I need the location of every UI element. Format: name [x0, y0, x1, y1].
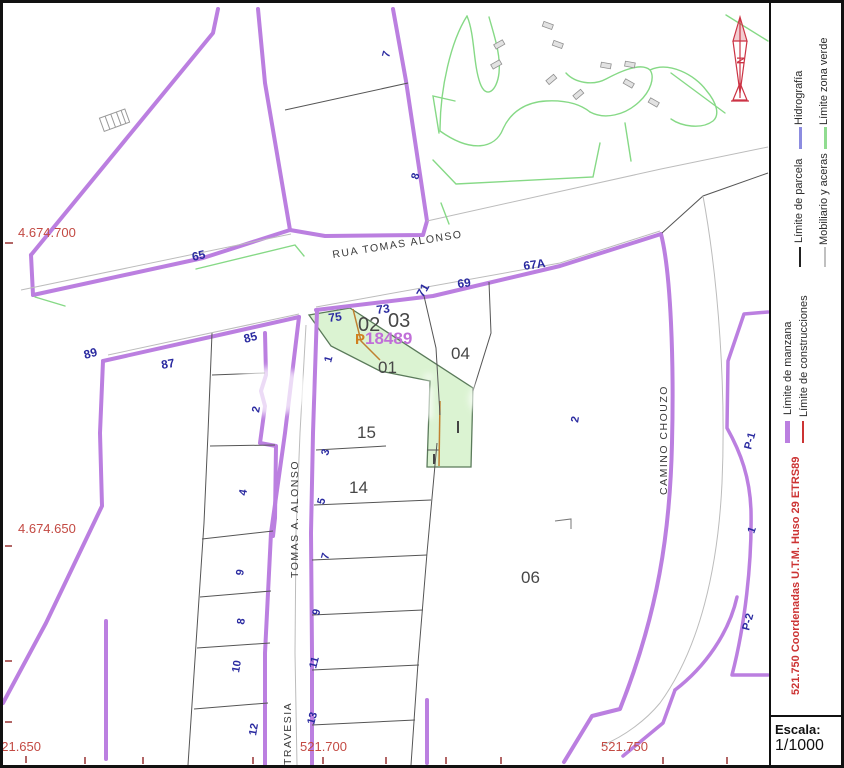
parcel-number: 11: [307, 655, 322, 669]
legend-label-construcciones: Límite de construcciones: [798, 295, 810, 417]
parcel-number: 2: [569, 415, 582, 423]
parcel-number: P-1: [742, 431, 758, 451]
parcel-number: 89: [82, 345, 99, 362]
legend-swatch-zona-verde: [824, 127, 827, 149]
block-number: 06: [521, 568, 540, 587]
parcel-number: 10: [230, 659, 244, 673]
parcel-number: 9: [234, 568, 247, 576]
block-number: 02: [358, 314, 380, 336]
block-number: 15: [357, 423, 376, 442]
scale-box: Escala: 1/1000: [771, 715, 844, 765]
coord-label: 521.700: [300, 739, 347, 754]
coord-label: 4.674.700: [18, 225, 76, 240]
parcel-number: 4: [237, 488, 250, 497]
legend-label-mobiliario: Mobiliario y aceras: [818, 153, 830, 245]
coord-label: 521.750: [601, 739, 648, 754]
street-label-tomas-a-alonso: TOMAS A. ALONSO: [289, 460, 301, 578]
street-label-camino-chouzo: CAMINO CHOUZO: [658, 385, 670, 495]
legend-swatch-construcciones: [802, 421, 804, 443]
block-number: 01: [378, 358, 397, 377]
coord-label: 4.674.650: [18, 521, 76, 536]
block-number: 14: [349, 478, 368, 497]
legend-swatch-mobiliario: [824, 247, 826, 267]
parcel-number: 85: [242, 329, 259, 346]
parcel-number: 8: [235, 617, 248, 625]
block-number: 03: [388, 310, 410, 332]
scale-title: Escala:: [775, 722, 840, 737]
scale-value: 1/1000: [775, 737, 840, 755]
north-arrow: N: [731, 17, 749, 101]
parcel-number: 7: [380, 50, 393, 59]
legend-label-parcela: Límite de parcela: [793, 159, 805, 243]
coord-label: 521.650: [3, 739, 41, 754]
structure-hatch: [99, 109, 129, 131]
legend-swatch-manzana: [785, 421, 790, 443]
legend-label-zona-verde: Límite zona verde: [818, 38, 830, 125]
crs-note: 521.750 Coordenadas U.T.M. Huso 29 ETRS8…: [790, 457, 802, 695]
map-canvas: N evi P18489 65 7 8 75 73 71 69 67A 89 8…: [3, 3, 769, 765]
parcel-number: 69: [456, 275, 471, 291]
parcel-number: 13: [305, 711, 320, 726]
parcel-number: 65: [191, 247, 207, 264]
cadastral-map-viewer: N evi P18489 65 7 8 75 73 71 69 67A 89 8…: [0, 0, 844, 768]
north-letter: N: [736, 57, 747, 64]
legend-swatch-hidrografia: [799, 127, 802, 149]
block-number: 04: [451, 344, 470, 363]
parcel-number: 1: [322, 355, 335, 364]
parcel-number: 87: [160, 356, 176, 372]
legend-swatch-parcela: [799, 247, 801, 267]
street-furniture: [491, 21, 660, 107]
street-label-travesia: TRAVESIA: [282, 702, 294, 765]
parcel-number: 12: [247, 722, 261, 736]
parcel-limit-lines: [188, 83, 768, 765]
legend-sidebar: Hidrografía Límite zona verde Límite de …: [769, 3, 844, 765]
parcel-number: 75: [327, 309, 342, 325]
legend-label-hidrografia: Hidrografía: [793, 71, 805, 125]
legend-label-manzana: Límite de manzana: [782, 321, 794, 415]
